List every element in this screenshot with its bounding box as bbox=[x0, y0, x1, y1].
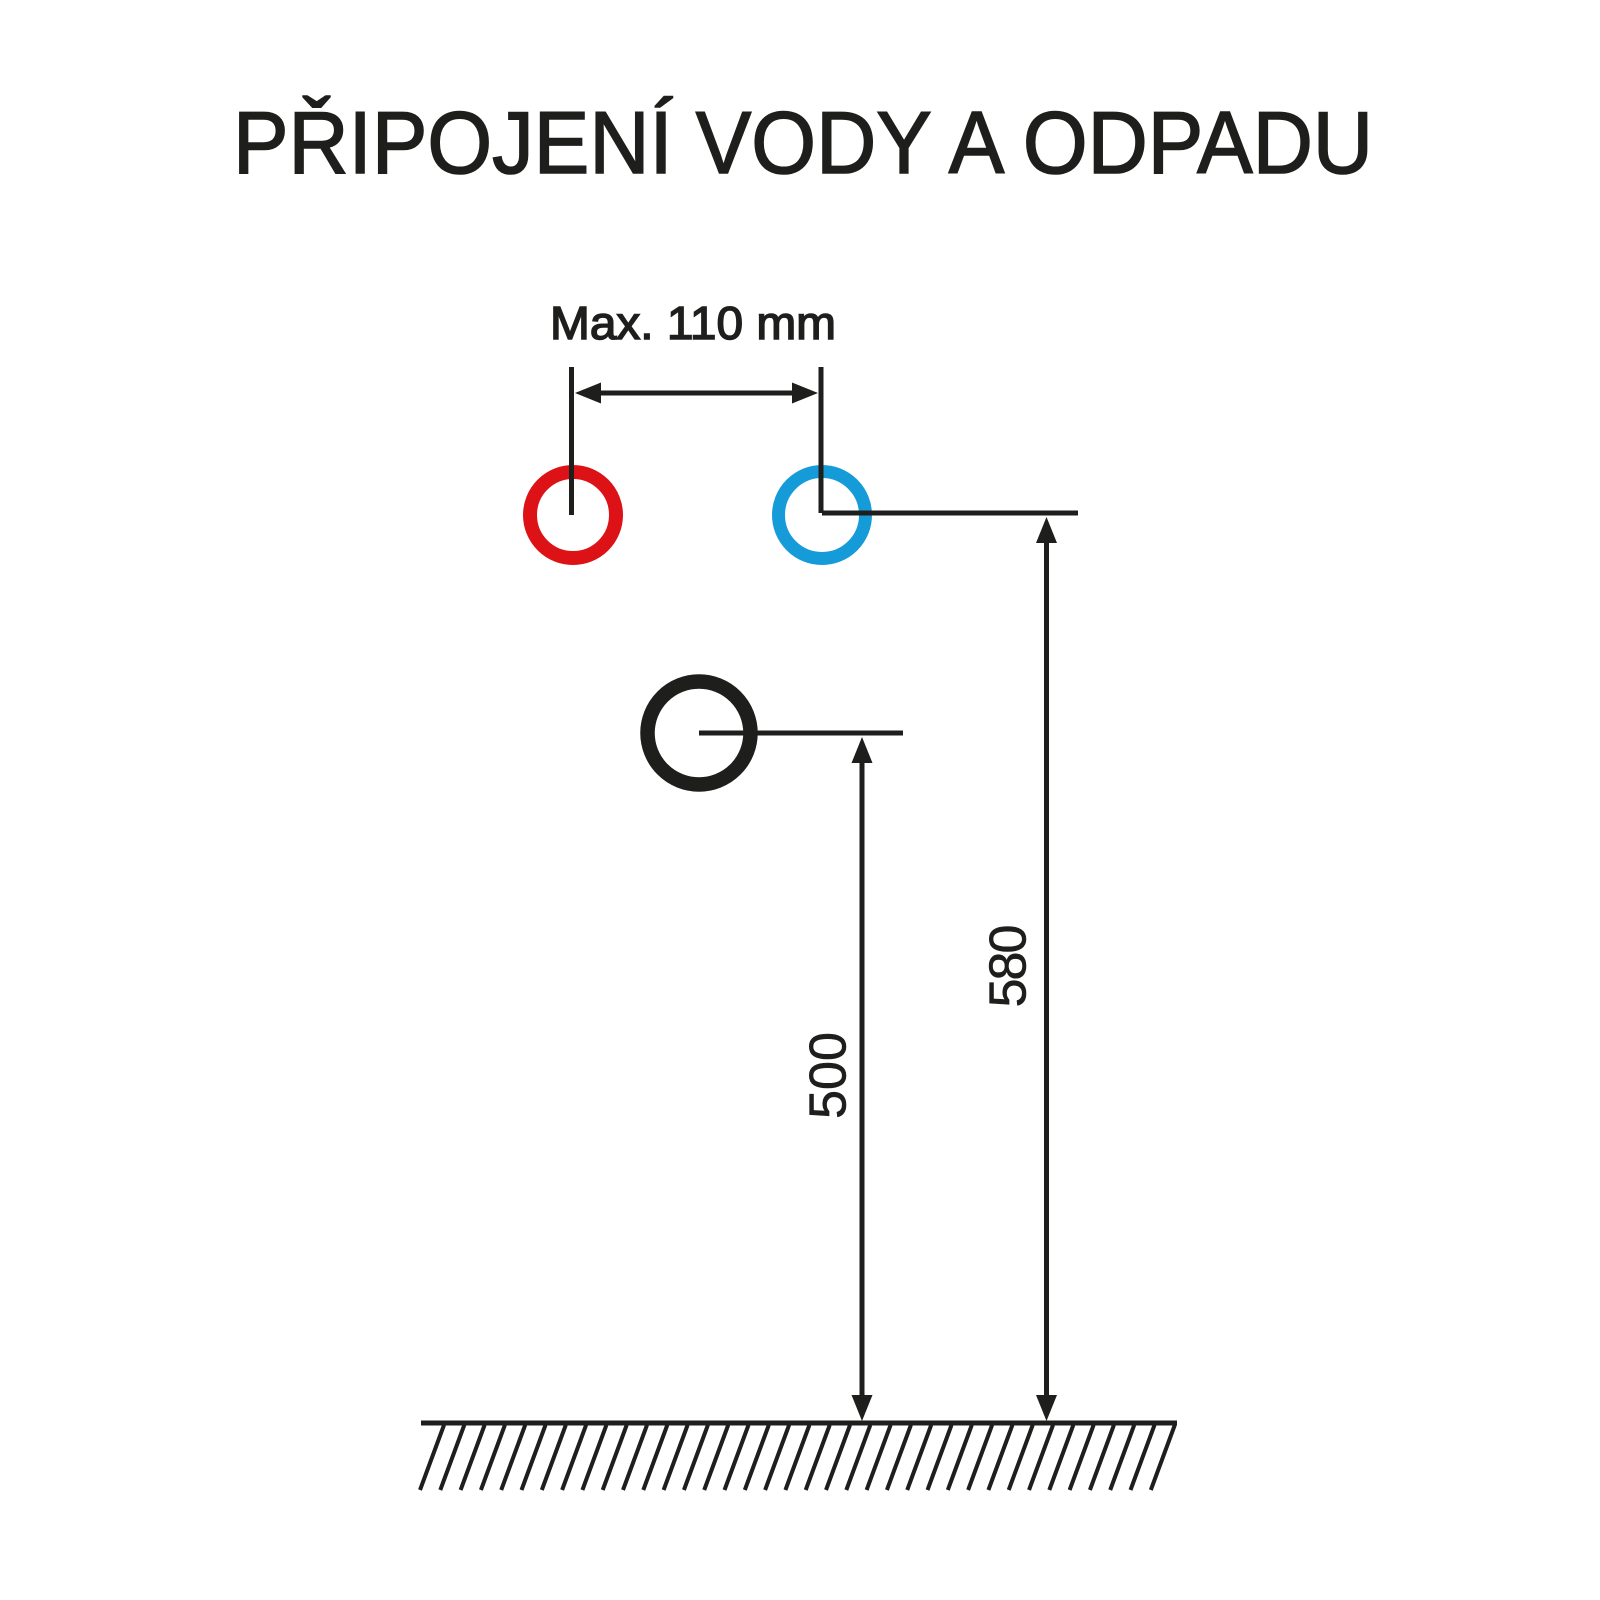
svg-text:580: 580 bbox=[980, 927, 1038, 1008]
svg-text:500: 500 bbox=[800, 1032, 858, 1119]
svg-text:PŘIPOJENÍ VODY A ODPADU: PŘIPOJENÍ VODY A ODPADU bbox=[233, 93, 1373, 192]
svg-text:Max. 110 mm: Max. 110 mm bbox=[550, 297, 836, 349]
